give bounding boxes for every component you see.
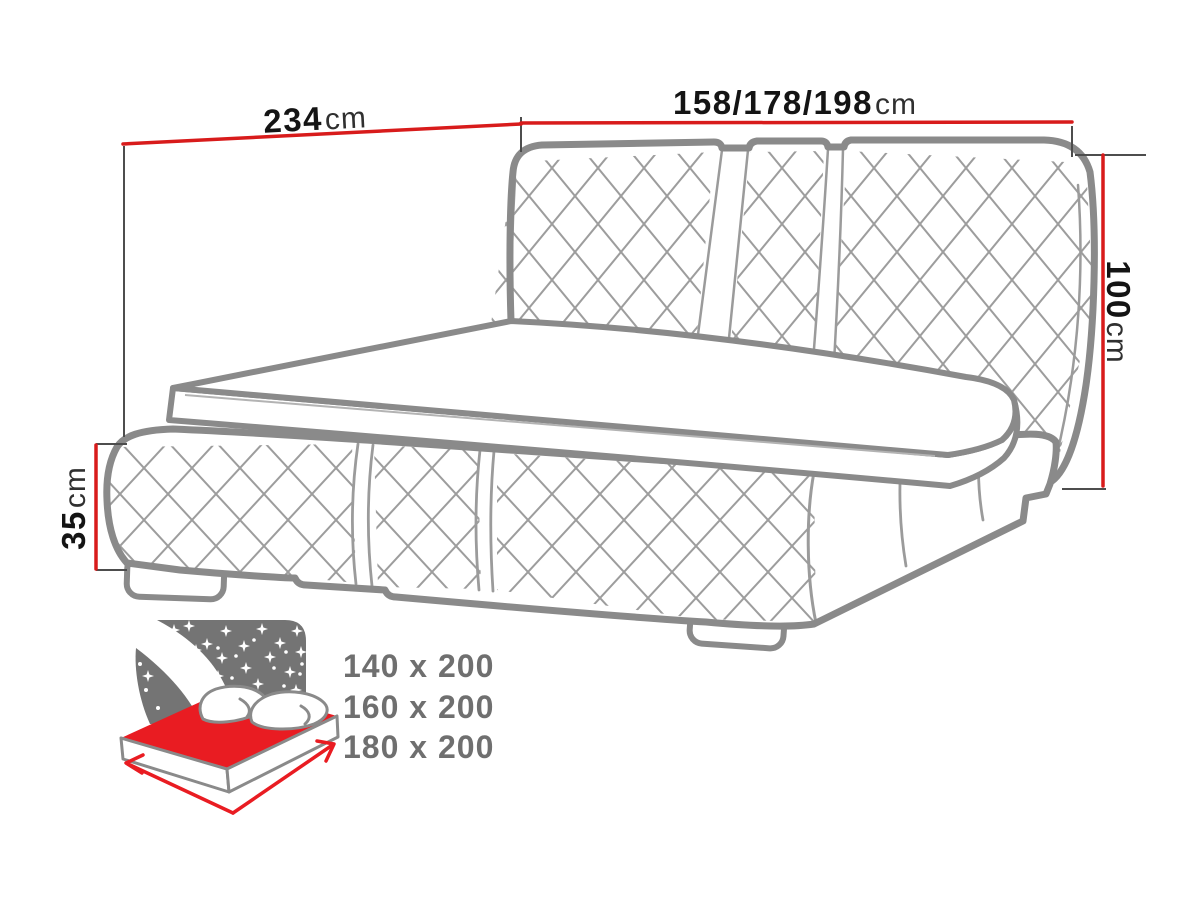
size-option-160x200: 160 x 200 <box>343 687 494 728</box>
star-dot <box>284 650 288 654</box>
star-dot <box>234 654 238 658</box>
size-option-140x200: 140 x 200 <box>343 646 494 687</box>
height-unit: cm <box>1100 322 1133 364</box>
star-dot <box>300 662 304 666</box>
dimension-label-height: 100cm <box>1101 260 1135 364</box>
size-option-180x200: 180 x 200 <box>343 727 494 768</box>
star-dot <box>230 676 234 680</box>
star-dot <box>298 672 302 676</box>
height-value: 100 <box>1100 260 1137 320</box>
star-dot <box>183 640 187 644</box>
star-dot <box>156 706 160 710</box>
star-dot <box>252 638 256 642</box>
width-dimension-line <box>521 122 1072 123</box>
mattress-size-bed-icon <box>121 620 338 813</box>
star-dot <box>282 684 286 688</box>
bed-dimension-diagram: 234cm 158/178/198cm 100cm 35cm 140 x 200… <box>0 0 1200 900</box>
right-pillow <box>251 692 327 729</box>
dimension-label-width: 158/178/198cm <box>673 86 917 120</box>
dimension-label-frame-height: 35cm <box>57 466 91 550</box>
length-unit: cm <box>324 101 368 136</box>
length-value: 234 <box>262 100 323 140</box>
mattress-size-list: 140 x 200 160 x 200 180 x 200 <box>343 646 494 768</box>
frame-height-value: 35 <box>55 510 92 550</box>
star-dot <box>198 653 202 657</box>
star-dot <box>138 662 142 666</box>
star-dot <box>144 688 148 692</box>
star-dot <box>272 666 276 670</box>
star-dot <box>216 646 220 650</box>
frame-height-unit: cm <box>59 466 92 508</box>
width-unit: cm <box>875 88 917 121</box>
width-value: 158/178/198 <box>673 84 873 121</box>
bed-drawing-canvas <box>0 0 1200 900</box>
dimension-label-length: 234cm <box>262 99 367 138</box>
